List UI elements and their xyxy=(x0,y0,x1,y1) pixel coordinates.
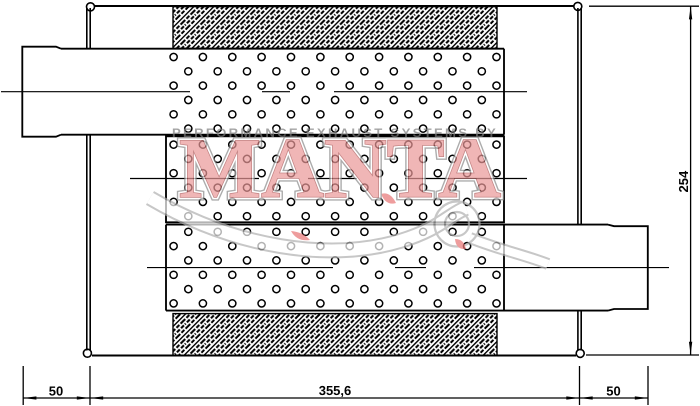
svg-text:50: 50 xyxy=(606,384,620,399)
svg-text:355,6: 355,6 xyxy=(319,383,352,398)
svg-text:50: 50 xyxy=(49,383,63,398)
svg-text:MANTA: MANTA xyxy=(179,120,501,216)
svg-text:254: 254 xyxy=(676,170,691,192)
